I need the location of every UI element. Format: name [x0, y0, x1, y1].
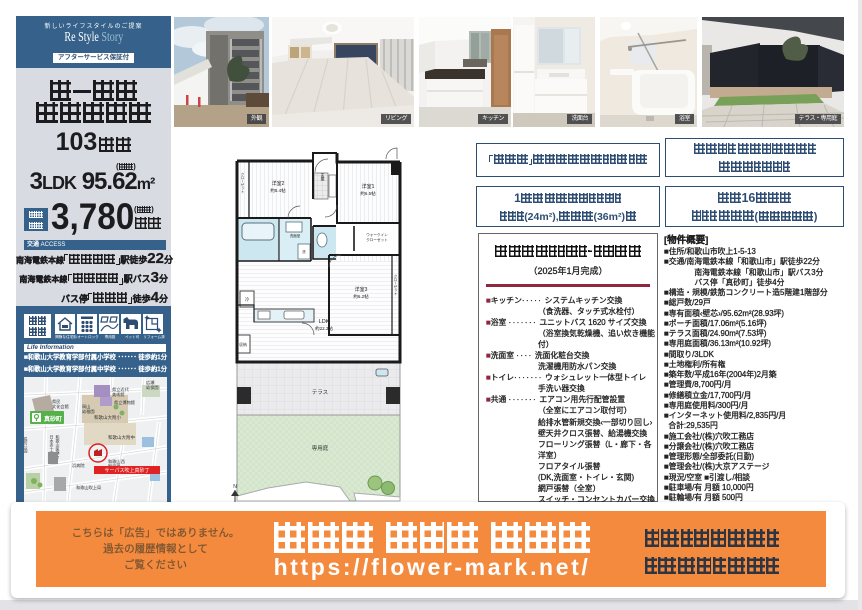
svg-text:クローゼット: クローゼット [393, 274, 398, 296]
svg-text:収納: 収納 [239, 341, 247, 347]
svg-text:和歌山大附中: 和歌山大附中 [108, 434, 135, 441]
svg-text:約22.3帖: 約22.3帖 [315, 325, 333, 332]
svg-text:洗: 洗 [302, 249, 306, 254]
svg-text:テラス: テラス [312, 389, 328, 396]
svg-text:クローゼット: クローゼット [240, 172, 245, 194]
svg-text:長町公園: 長町公園 [24, 437, 29, 454]
svg-text:幼稚園: 幼稚園 [82, 408, 95, 415]
svg-text:玄関: 玄関 [320, 173, 325, 182]
svg-text:約5.4帖: 約5.4帖 [270, 187, 286, 194]
svg-text:専用庭: 専用庭 [312, 444, 329, 452]
svg-text:浜病院: 浜病院 [72, 462, 85, 469]
svg-text:クローゼット: クローゼット [366, 237, 388, 242]
svg-text:約6.2帖: 約6.2帖 [353, 293, 369, 300]
svg-text:約6.5帖: 約6.5帖 [360, 190, 376, 197]
svg-text:和歌山吹上局: 和歌山吹上局 [76, 484, 101, 491]
svg-text:N: N [233, 484, 237, 490]
svg-text:ウォークイン: ウォークイン [366, 232, 388, 237]
svg-text:美術館: 美術館 [112, 391, 125, 398]
svg-text:県立博物館: 県立博物館 [114, 399, 135, 406]
svg-text:冷: 冷 [245, 296, 250, 303]
svg-text:LDK: LDK [319, 319, 330, 325]
svg-text:洋室3: 洋室3 [355, 286, 368, 293]
svg-text:和歌山大附小: 和歌山大附小 [94, 414, 121, 421]
svg-text:サーパス吹上真砂丁: サーパス吹上真砂丁 [105, 467, 150, 474]
svg-text:幼保園: 幼保園 [146, 384, 159, 391]
svg-text:真砂町: 真砂町 [44, 415, 62, 423]
svg-text:洗面室: 洗面室 [290, 233, 301, 238]
svg-text:洋室2: 洋室2 [272, 180, 285, 187]
svg-text:洋室1: 洋室1 [362, 183, 375, 190]
svg-text:文化会館: 文化会館 [52, 403, 69, 410]
